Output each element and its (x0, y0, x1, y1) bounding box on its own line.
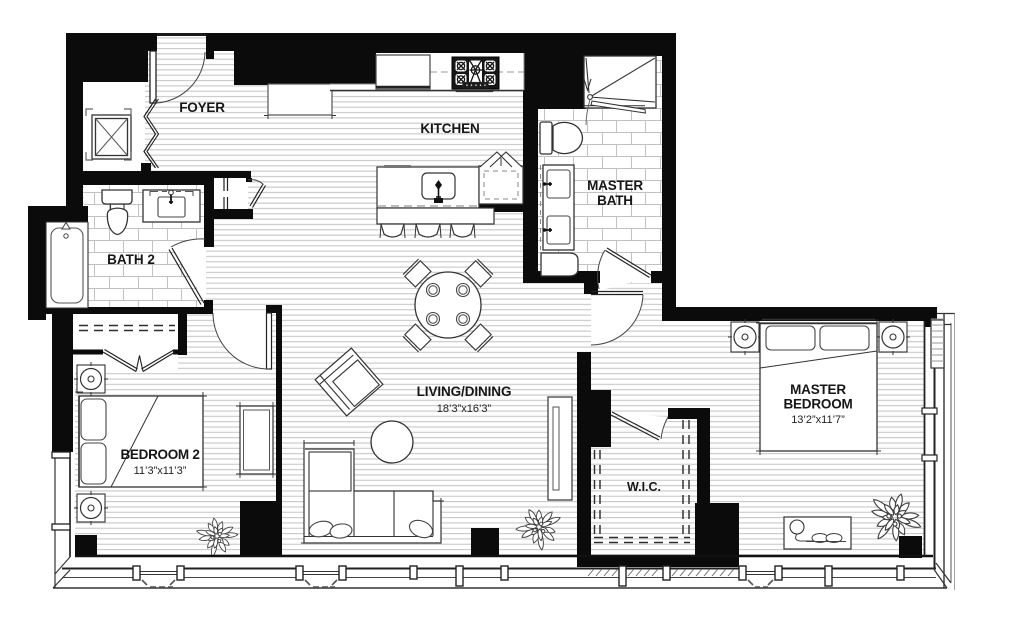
svg-text:BATH: BATH (597, 193, 633, 208)
svg-text:KITCHEN: KITCHEN (420, 121, 479, 136)
svg-text:18’3”x16’3”: 18’3”x16’3” (437, 403, 492, 415)
svg-text:W.I.C.: W.I.C. (627, 480, 661, 494)
svg-text:MASTER: MASTER (587, 178, 643, 193)
svg-text:BEDROOM: BEDROOM (783, 397, 852, 412)
svg-text:FOYER: FOYER (179, 100, 225, 115)
svg-text:MASTER: MASTER (790, 382, 846, 397)
svg-text:11’3”x11’3”: 11’3”x11’3” (134, 465, 187, 477)
svg-text:BATH 2: BATH 2 (107, 252, 155, 267)
svg-text:LIVING/DINING: LIVING/DINING (417, 384, 512, 399)
svg-text:BEDROOM 2: BEDROOM 2 (120, 447, 199, 462)
svg-text:13’2”x11’7”: 13’2”x11’7” (791, 414, 845, 426)
